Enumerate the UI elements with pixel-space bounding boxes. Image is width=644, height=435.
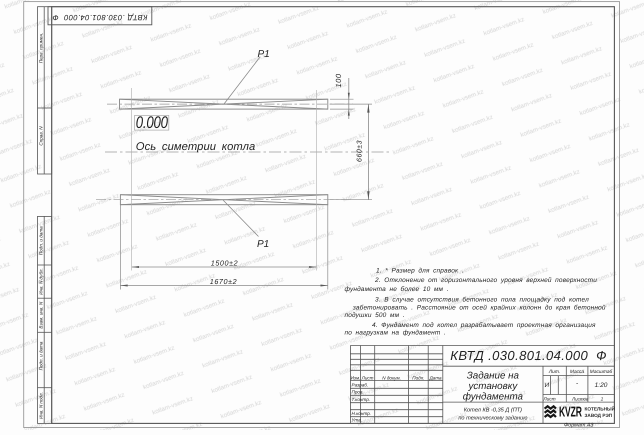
- svg-text:4. Фундамент под котел разраб: 4. Фундамент под котел разрабатывает про…: [372, 322, 596, 329]
- svg-text:КВТД .030.801.04.000 Ф: КВТД .030.801.04.000 Ф: [450, 348, 607, 363]
- svg-text:1:20: 1:20: [595, 382, 608, 389]
- svg-text:N докум.: N докум.: [382, 375, 401, 380]
- svg-text:фундамента не более 10 мм .: фундамента не более 10 мм .: [345, 286, 449, 293]
- svg-text:660±3: 660±3: [357, 140, 364, 162]
- svg-text:Т.контр.: Т.контр.: [352, 397, 371, 402]
- svg-text:Лист: Лист: [361, 375, 374, 380]
- svg-text:Ось симетрии котла: Ось симетрии котла: [136, 141, 256, 153]
- svg-text:Пров.: Пров.: [352, 390, 364, 395]
- svg-text:Лист: Лист: [542, 396, 555, 402]
- svg-text:1. * Размер для справок .: 1. * Размер для справок .: [376, 268, 464, 275]
- svg-text:Инв. N дубл.: Инв. N дубл.: [39, 268, 44, 295]
- svg-text:3. В случае отсутствия бетонн: 3. В случае отсутствия бетонного пола пл…: [375, 297, 589, 304]
- svg-text:2. Отклонение от горизонтал: 2. Отклонение от горизонтального уровня …: [374, 277, 597, 284]
- svg-text:Р1: Р1: [258, 49, 270, 60]
- svg-text:0.000: 0.000: [136, 113, 169, 132]
- svg-text:Разраб.: Разраб.: [352, 383, 369, 388]
- svg-text:Изм.: Изм.: [351, 375, 361, 380]
- svg-text:Подп. и дата: Подп. и дата: [39, 226, 44, 255]
- svg-text:подушки 500 мм .: подушки 500 мм .: [345, 312, 405, 319]
- svg-text:100: 100: [334, 73, 343, 87]
- svg-text:Утв.: Утв.: [352, 418, 362, 423]
- svg-text:1500±2: 1500±2: [211, 258, 239, 267]
- svg-text:ЗАВОД РЭП: ЗАВОД РЭП: [585, 413, 613, 418]
- svg-text:Масштаб: Масштаб: [590, 369, 613, 375]
- svg-text:Листов: Листов: [571, 396, 589, 401]
- svg-text:фундамента: фундамента: [463, 391, 524, 402]
- svg-text:KVZR: KVZR: [559, 405, 582, 421]
- svg-text:Н.контр.: Н.контр.: [352, 411, 371, 416]
- svg-text:Задание на: Задание на: [467, 370, 520, 381]
- svg-text:Р1: Р1: [257, 239, 269, 250]
- svg-text:Перв. примен.: Перв. примен.: [39, 33, 44, 64]
- svg-text:Подп.: Подп.: [412, 375, 424, 380]
- svg-text:Лит.: Лит.: [548, 369, 560, 375]
- svg-text:И: И: [545, 382, 550, 389]
- svg-text:установку: установку: [468, 381, 519, 392]
- svg-text:1670±2: 1670±2: [210, 277, 238, 286]
- svg-text:Масса: Масса: [570, 369, 585, 375]
- svg-text:КВТД .030.801.04.000 Ф: КВТД .030.801.04.000 Ф: [52, 13, 147, 22]
- svg-text:Взам. инв. N: Взам. инв. N: [39, 301, 44, 328]
- svg-text:Справ. N: Справ. N: [39, 126, 44, 146]
- svg-text:Формат А3: Формат А3: [564, 423, 594, 429]
- svg-text:Котел КВ -0,35 Д (ПТ): Котел КВ -0,35 Д (ПТ): [464, 407, 522, 414]
- svg-text:1: 1: [601, 396, 604, 402]
- svg-text:Дата: Дата: [428, 375, 442, 380]
- svg-text:Подп. и дата: Подп. и дата: [39, 341, 44, 370]
- svg-text:Инв. N подл.: Инв. N подл.: [39, 392, 44, 419]
- svg-text:по нагрузкам на фундамент .: по нагрузкам на фундамент .: [345, 330, 447, 337]
- svg-text:по техническому заданию: по техническому заданию: [458, 415, 528, 422]
- svg-text:забетонировать . Расстояние о: забетонировать . Расстояние от осей край…: [352, 304, 606, 311]
- svg-text:КОТЕЛЬНЫЙ: КОТЕЛЬНЫЙ: [585, 406, 616, 412]
